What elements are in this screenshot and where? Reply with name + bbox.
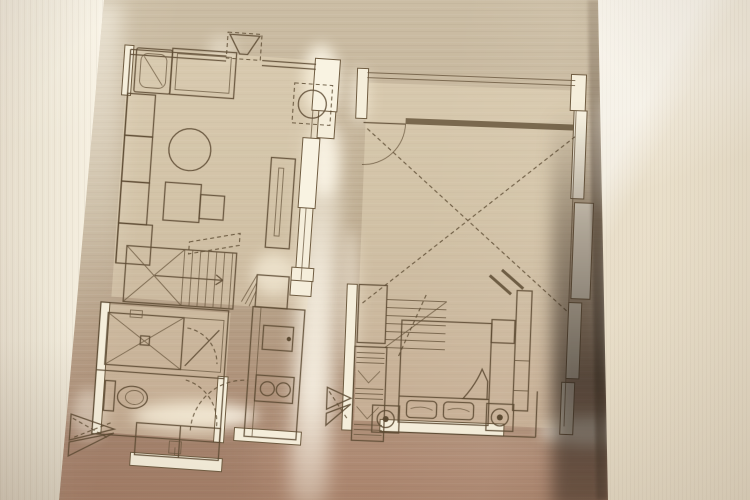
counter-edge (252, 307, 261, 437)
wallpaper-right (590, 0, 750, 500)
sink-icon (262, 325, 294, 351)
bath-floor-tint (94, 304, 231, 441)
balcony-rail (367, 73, 575, 86)
upper-floor-tint (354, 83, 577, 429)
cooktop-icon (254, 375, 294, 404)
wallpaper-right-light-diagonal (590, 0, 750, 240)
lower-floor-plan (83, 30, 361, 456)
floor-plan-photo (0, 0, 750, 500)
